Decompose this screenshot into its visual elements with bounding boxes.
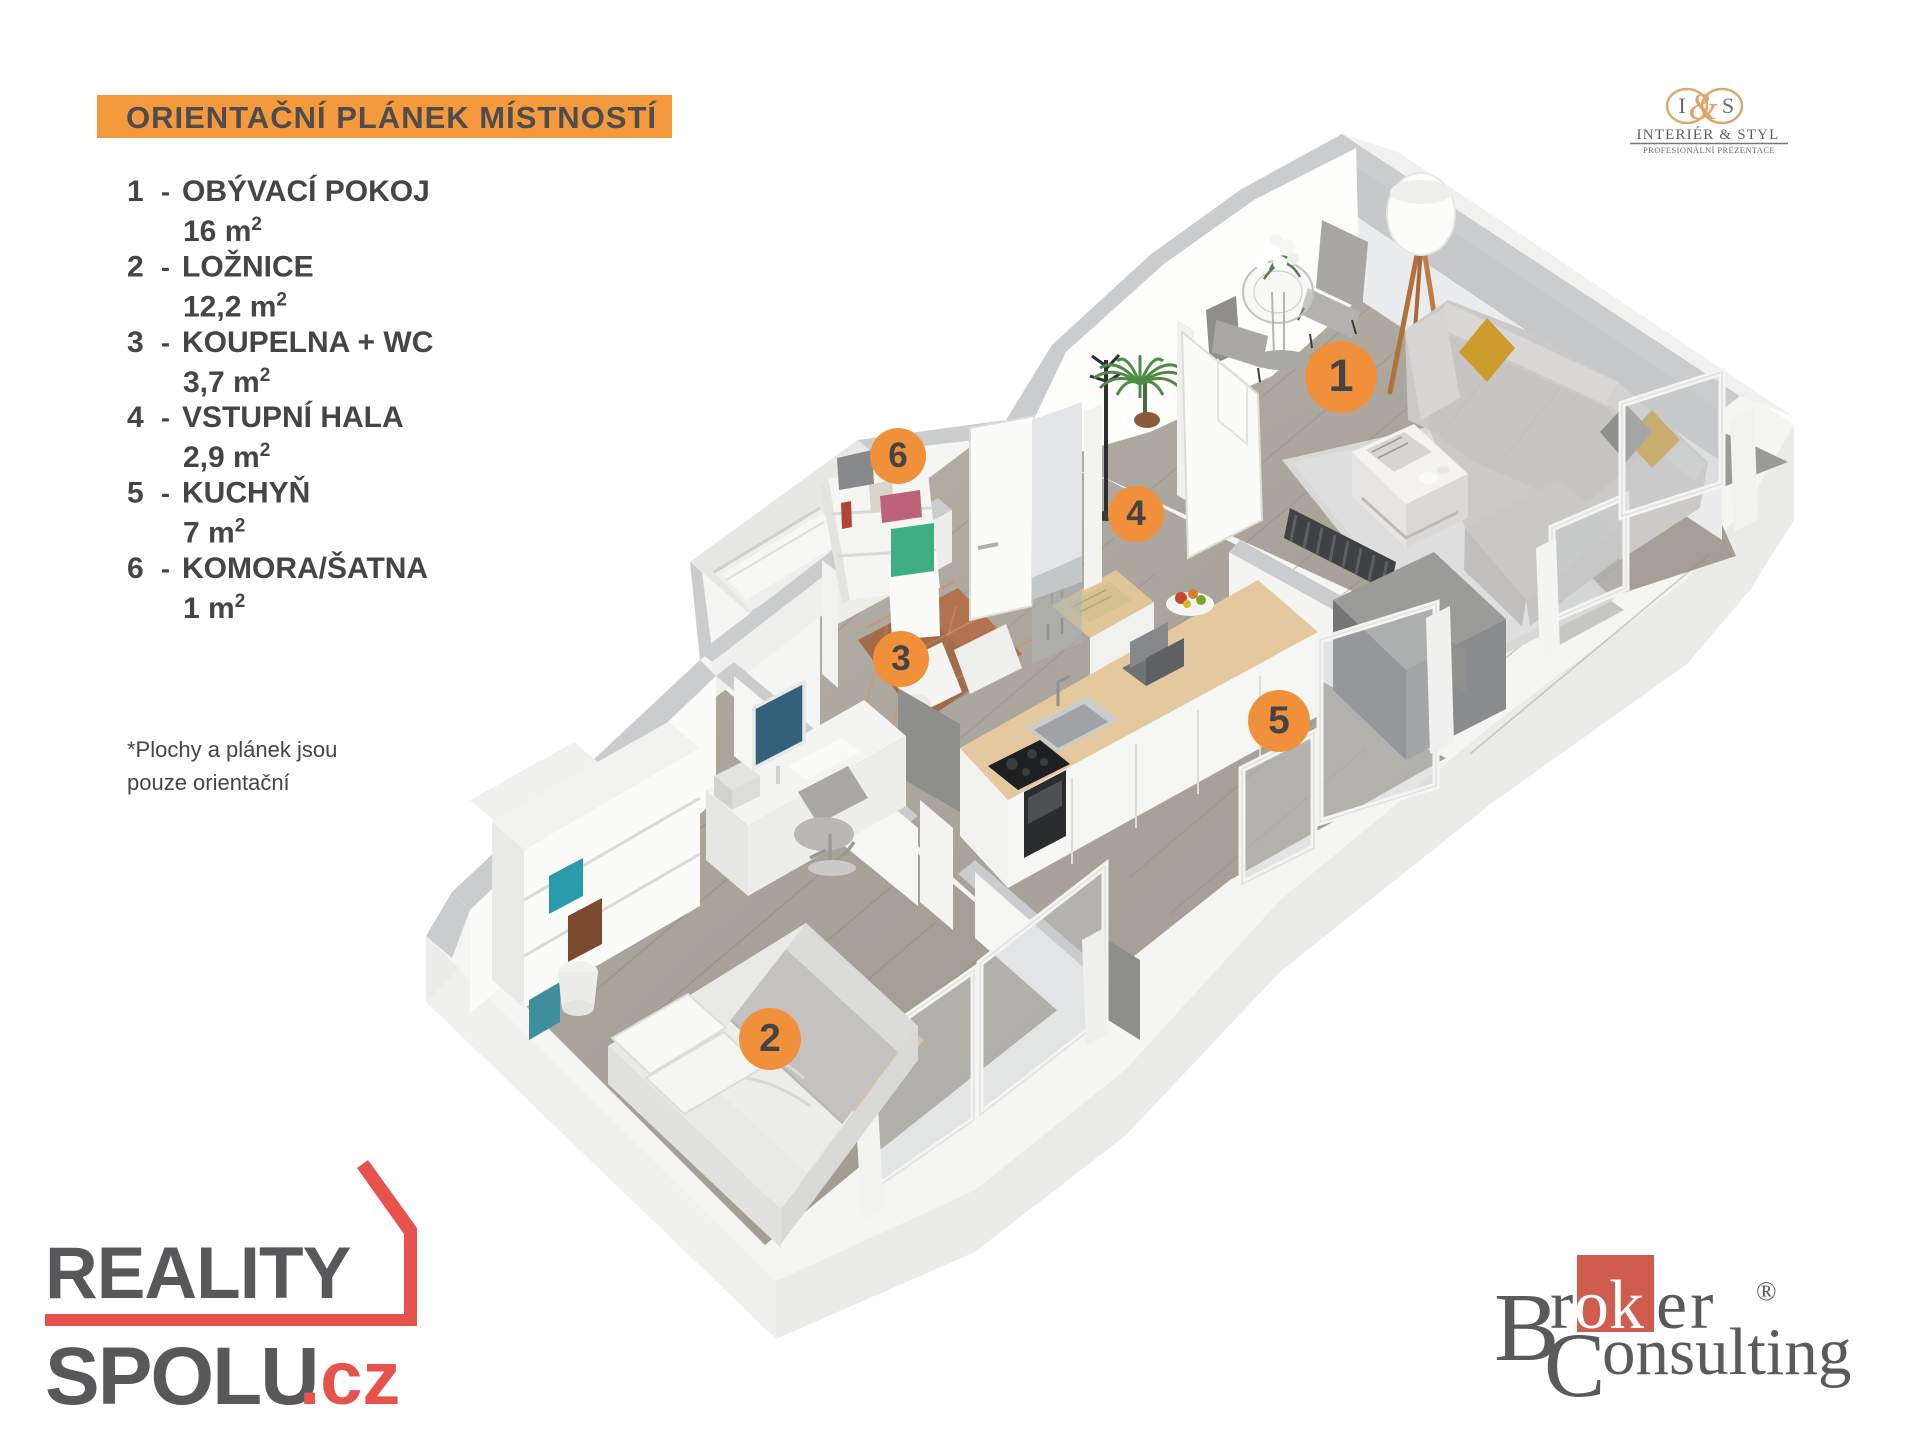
svg-text:-: - [161,177,170,207]
svg-text:PROFESIONÁLNÍ PREZENTACE: PROFESIONÁLNÍ PREZENTACE [1643,145,1775,155]
svg-text:INTERIÉR & STYL: INTERIÉR & STYL [1637,126,1780,143]
svg-text:REALITY: REALITY [45,1233,351,1314]
svg-text:4: 4 [1126,494,1146,533]
svg-text:-: - [161,554,170,584]
svg-text:KUCHYŇ: KUCHYŇ [182,476,310,510]
svg-text:KOMORA/ŠATNA: KOMORA/ŠATNA [182,551,428,585]
svg-text:-: - [161,328,170,358]
svg-text:16 m2: 16 m2 [183,214,262,248]
svg-text:S: S [1722,93,1734,118]
svg-text:1: 1 [127,175,144,208]
svg-text:6: 6 [127,552,144,585]
svg-text:SPOLU: SPOLU [45,1331,317,1422]
svg-text:VSTUPNÍ HALA: VSTUPNÍ HALA [182,400,404,434]
svg-text:3: 3 [891,639,910,678]
svg-text:3,7 m2: 3,7 m2 [183,365,270,399]
svg-text:onsulting: onsulting [1602,1315,1851,1389]
svg-text:4: 4 [127,401,144,434]
svg-text:2: 2 [759,1017,781,1060]
svg-text:3: 3 [127,326,144,359]
svg-text:12,2 m2: 12,2 m2 [183,289,287,323]
svg-text:pouze orientační: pouze orientační [127,770,290,795]
svg-text:-: - [161,479,170,509]
svg-text:OBÝVACÍ POKOJ: OBÝVACÍ POKOJ [182,174,430,208]
svg-text:1: 1 [1328,350,1353,401]
svg-text:-: - [161,403,170,433]
svg-text:2,9 m2: 2,9 m2 [183,440,270,474]
svg-text:.cz: .cz [299,1336,400,1421]
svg-text:6: 6 [888,436,907,475]
svg-text:LOŽNICE: LOŽNICE [182,249,314,283]
svg-text:I: I [1678,93,1685,118]
svg-text:ORIENTAČNÍ PLÁNEK MÍSTNOSTÍ: ORIENTAČNÍ PLÁNEK MÍSTNOSTÍ [126,99,657,135]
svg-text:&: & [1688,86,1718,128]
svg-text:*Plochy a plánek jsou: *Plochy a plánek jsou [127,737,337,762]
svg-text:®: ® [1756,1276,1777,1306]
svg-text:C: C [1544,1314,1605,1416]
svg-text:5: 5 [1268,699,1290,742]
svg-text:-: - [161,252,170,282]
svg-text:KOUPELNA + WC: KOUPELNA + WC [182,326,433,359]
svg-text:2: 2 [127,250,144,283]
svg-text:5: 5 [127,477,144,510]
